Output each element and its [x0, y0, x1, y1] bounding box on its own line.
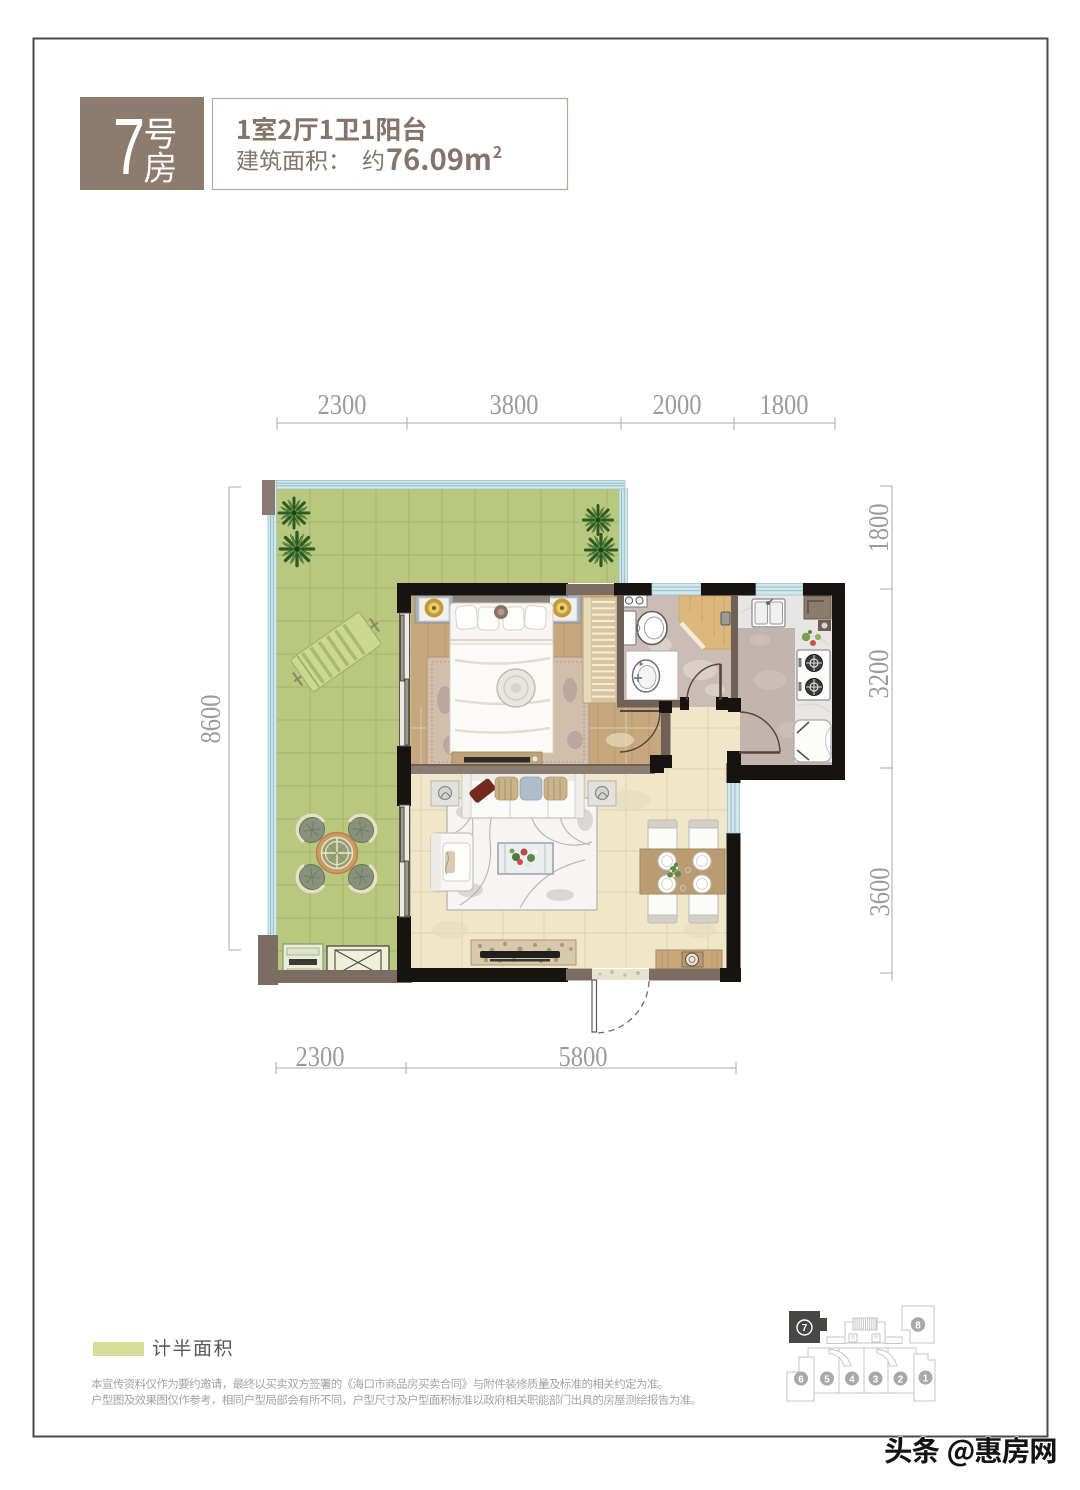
svg-text:5800: 5800: [559, 1041, 608, 1073]
svg-text:6: 6: [798, 1375, 804, 1386]
svg-text:3600: 3600: [864, 868, 896, 917]
svg-text:7: 7: [113, 102, 145, 192]
svg-text:4: 4: [849, 1375, 855, 1386]
svg-text:3: 3: [873, 1375, 879, 1386]
svg-text:2000: 2000: [653, 389, 702, 421]
svg-text:7: 7: [802, 1323, 808, 1334]
svg-text:1800: 1800: [760, 389, 809, 421]
svg-text:1800: 1800: [863, 504, 895, 553]
svg-text:5: 5: [824, 1375, 830, 1386]
svg-text:2: 2: [898, 1375, 904, 1386]
svg-text:3200: 3200: [863, 650, 895, 699]
svg-text:2300: 2300: [318, 389, 367, 421]
svg-text:1: 1: [923, 1374, 929, 1385]
svg-text:2300: 2300: [296, 1041, 345, 1073]
svg-text:8600: 8600: [195, 695, 227, 744]
svg-text:8: 8: [915, 1321, 921, 1332]
svg-text:3800: 3800: [490, 389, 539, 421]
